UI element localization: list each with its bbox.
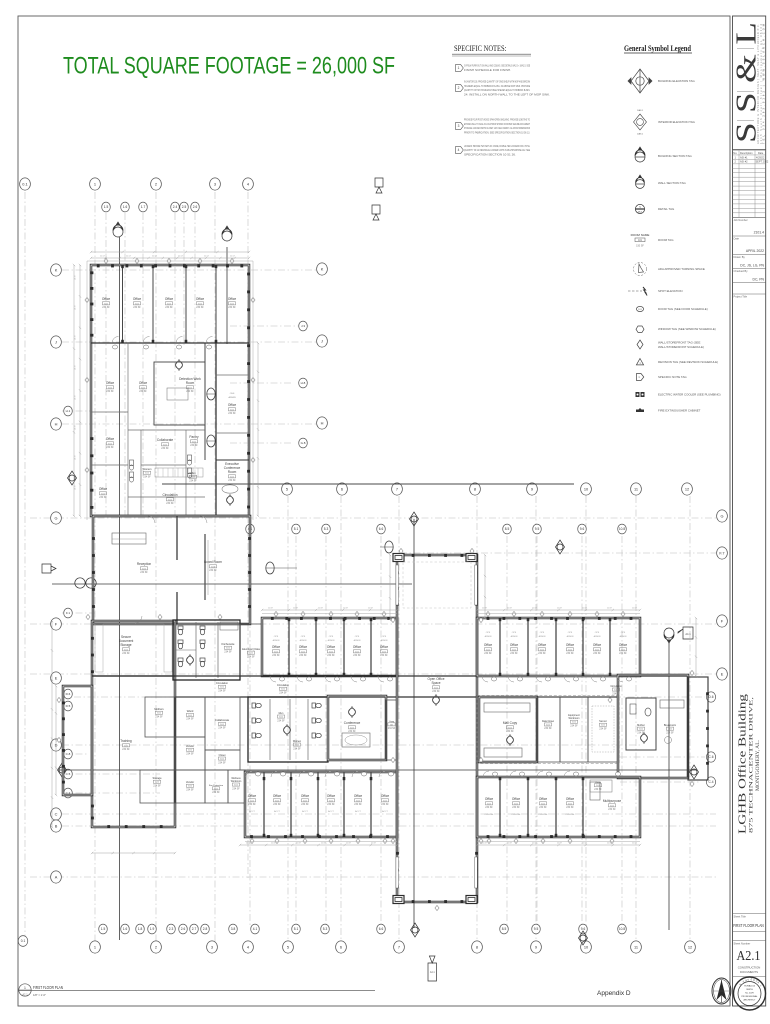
svg-text:3: 3 [214,181,216,186]
svg-text:12'-0": 12'-0" [100,256,105,258]
svg-text:Office: Office [380,645,388,649]
svg-text:FIRE EXTINGUISHER CABINET: FIRE EXTINGUISHER CABINET [658,409,701,413]
svg-text:DETAIL TAG: DETAIL TAG [658,207,675,211]
svg-text:A4.1: A4.1 [685,632,691,636]
svg-text:Office: Office [512,797,520,801]
svg-text:14'-6": 14'-6" [75,365,77,370]
svg-text:LGHB Office Building: LGHB Office Building [738,693,749,834]
svg-text:SEPT 2022: SEPT 2022 [756,161,769,164]
svg-text:ADA APPROVED TURNING SPACE: ADA APPROVED TURNING SPACE [658,267,705,271]
svg-text:234 SF: 234 SF [209,570,217,572]
svg-text:234 SF: 234 SF [510,653,518,655]
svg-text:10'-8": 10'-8" [246,843,251,845]
svg-text:Office: Office [327,794,335,798]
svg-text:Office: Office [484,643,492,647]
svg-text:Mothers: Mothers [154,707,164,711]
svg-text:G: G [54,515,57,520]
svg-text:234 SF: 234 SF [301,804,309,806]
svg-text:10'-8": 10'-8" [532,608,537,610]
svg-text:Space: Space [431,681,440,685]
svg-text:Date: Date [758,152,764,155]
svg-text:ADMIN: ADMIN [273,639,280,642]
svg-text:9.5: 9.5 [534,927,539,931]
svg-text:875 TECHNACENTER DRIVE,: 875 TECHNACENTER DRIVE, [749,696,755,833]
svg-text:234 SF: 234 SF [218,691,226,693]
svg-text:E: E [721,671,724,676]
svg-text:12: 12 [685,486,689,491]
svg-text:234 SF: 234 SF [327,655,335,657]
svg-text:WINDOW TAG (SEE WINDOW SCHEDUL: WINDOW TAG (SEE WINDOW SCHEDULE) [658,327,716,331]
svg-text:Training: Training [120,739,132,743]
svg-text:A2.1: A2.1 [737,949,761,964]
svg-text:8: 8 [476,944,478,949]
svg-text:234 SF: 234 SF [143,477,151,479]
svg-text:BUILDING SECTION TAG: BUILDING SECTION TAG [658,154,693,158]
svg-text:C.5: C.5 [66,772,71,776]
svg-text:10'-8": 10'-8" [482,608,487,610]
svg-text:Collaborate: Collaborate [157,438,174,442]
svg-text:ASI #1: ASI #1 [740,156,748,159]
svg-text:RONALD A: RONALD A [744,985,755,988]
svg-text:H.8: H.8 [301,381,306,385]
svg-text:F.1: F.1 [66,611,70,615]
svg-text:ADMIN: ADMIN [485,635,492,638]
svg-text:MONTGOMERY, AL.: MONTGOMERY, AL. [755,739,761,791]
svg-text:OPS: OPS [568,632,573,634]
svg-text:5.3: 5.3 [324,527,329,531]
svg-text:10'-8": 10'-8" [557,608,562,610]
svg-text:H: H [321,420,324,425]
svg-text:ACCT: ACCT [355,810,361,813]
svg-text:234 SF: 234 SF [484,653,492,655]
svg-text:Kitchenette: Kitchenette [222,642,236,646]
svg-text:234 SF: 234 SF [277,720,285,722]
svg-text:234 SF: 234 SF [186,754,194,756]
svg-text:Room: Room [228,470,237,474]
svg-text:J: J [55,339,57,344]
svg-text:2.4: 2.4 [173,205,178,209]
svg-text:SPOT ELEVATION: SPOT ELEVATION [658,289,682,293]
svg-text:234 SF: 234 SF [186,790,194,792]
svg-text:4.1: 4.1 [253,927,258,931]
svg-text:5: 5 [286,486,288,491]
svg-text:OPS: OPS [355,636,360,638]
svg-text:H: H [55,421,58,426]
svg-text:Board Room: Board Room [204,560,222,564]
svg-text:Office: Office [619,643,627,647]
svg-text:234 SF: 234 SF [272,655,280,657]
svg-text:Office: Office [510,643,518,647]
svg-text:Office: Office [139,381,147,385]
svg-text:234 SF: 234 SF [506,731,514,733]
svg-text:234 SF: 234 SF [186,719,194,721]
svg-text:234 SF: 234 SF [165,307,173,309]
svg-text:FINISH SCHEDULE FOR FINISH.: FINISH SCHEDULE FOR FINISH. [464,68,511,72]
svg-text:234 SF: 234 SF [512,807,520,809]
svg-text:10'-8": 10'-8" [293,608,298,610]
svg-text:2.5: 2.5 [182,205,187,209]
svg-text:234 SF: 234 SF [593,653,601,655]
svg-text:Office: Office [539,797,547,801]
svg-text:WALL/STOREFRONT TAG (SEE: WALL/STOREFRONT TAG (SEE [658,341,700,345]
svg-text:12'-0": 12'-0" [230,256,235,258]
svg-text:Project Title: Project Title [734,295,748,299]
svg-text:10'-8": 10'-8" [371,843,376,845]
svg-text:Office: Office [381,794,389,798]
svg-text:Ward: Ward [187,709,194,713]
svg-text:10'-8": 10'-8" [532,843,537,845]
svg-text:ROOM TAG: ROOM TAG [658,238,674,242]
svg-text:OSS: OSS [230,393,235,395]
svg-text:234 SF: 234 SF [139,391,147,393]
svg-text:Fire Protection: Fire Protection [209,784,224,787]
svg-text:H.1: H.1 [66,409,71,413]
svg-text:Mail Copy: Mail Copy [503,721,518,725]
svg-text:10'-8": 10'-8" [507,843,512,845]
svg-text:10'-8": 10'-8" [582,608,587,610]
svg-text:14'-6": 14'-6" [75,395,77,400]
svg-text:ADMIN: ADMIN [620,635,627,638]
svg-text:6: 6 [340,944,342,949]
svg-text:1: 1 [24,986,26,990]
svg-text:234 SF: 234 SF [212,792,220,794]
svg-text:14'-6": 14'-6" [75,425,77,430]
svg-text:234 SF: 234 SF [190,445,198,447]
svg-text:234 SF: 234 SF [566,807,574,809]
svg-text:Office: Office [99,487,107,491]
svg-text:Drawn By: Drawn By [734,255,746,259]
svg-text:ADMIN: ADMIN [328,639,335,642]
svg-text:Room: Room [186,381,195,385]
svg-text:9: 9 [531,486,533,491]
svg-text:234 SF: 234 SF [538,653,546,655]
svg-text:234 SF: 234 SF [122,749,130,751]
svg-text:OPS: OPS [486,632,491,634]
svg-text:CLINICAL: CLINICAL [538,813,548,816]
svg-text:ADMIN: ADMIN [354,639,361,642]
svg-text:10'-8": 10'-8" [368,608,373,610]
svg-text:5.1: 5.1 [294,927,299,931]
svg-text:234 SF: 234 SF [140,572,148,574]
svg-text:234 SF: 234 SF [248,804,256,806]
svg-text:5.3: 5.3 [323,927,328,931]
svg-text:C.8: C.8 [66,752,71,756]
svg-text:General Symbol Legend: General Symbol Legend [624,44,691,53]
svg-text:234 SF: 234 SF [106,391,114,393]
svg-text:Office: Office [228,403,236,407]
svg-text:J: J [321,338,323,343]
svg-text:5: 5 [287,944,289,949]
svg-text:10'-8": 10'-8" [607,608,612,610]
svg-text:10'-8": 10'-8" [632,608,637,610]
svg-text:2.6: 2.6 [193,205,198,209]
svg-text:Men: Men [279,712,284,715]
svg-text:Office: Office [228,297,236,301]
svg-text:DC, PN: DC, PN [753,278,765,282]
svg-text:11: 11 [634,944,638,949]
svg-text:9.6: 9.6 [580,527,585,531]
svg-text:Wellness: Wellness [231,778,241,780]
svg-text:3: 3 [458,124,460,128]
svg-text:Collaborate: Collaborate [215,718,230,722]
svg-text:SPECIFIC NOTE TAG: SPECIFIC NOTE TAG [658,375,687,379]
svg-text:Office: Office [165,297,173,301]
svg-text:A: A [55,874,58,879]
svg-text:2: 2 [458,86,460,90]
svg-text:TEL 334.263.5162 | WWW.SSLARCH: TEL 334.263.5162 | WWW.SSLARCH.COM [761,24,765,144]
svg-text:234 SF: 234 SF [299,655,307,657]
svg-text:ACCT: ACCT [382,810,388,813]
svg-text:Office: Office [133,297,141,301]
svg-text:1/A8.1: 1/A8.1 [637,109,644,112]
svg-text:PROFESSIONAL: PROFESSIONAL [741,995,758,998]
svg-text:Office: Office [106,437,114,441]
svg-text:2.7: 2.7 [192,927,197,931]
svg-text:234 SF: 234 SF [388,728,396,730]
svg-text:OPS: OPS [512,632,517,634]
svg-text:TOTAL SQUARE FOOTAGE = 26,000: TOTAL SQUARE FOOTAGE = 26,000 SF [63,53,395,80]
svg-text:1.5: 1.5 [101,927,106,931]
svg-text:Sheet Title: Sheet Title [734,915,747,919]
svg-text:14'-6": 14'-6" [75,335,77,340]
svg-text:Office: Office [273,794,281,798]
svg-text:1: 1 [94,944,96,949]
svg-text:APRIL 2022: APRIL 2022 [746,249,764,253]
svg-text:G.8: G.8 [301,441,306,445]
svg-text:FIRST FLOOR PLAN: FIRST FLOOR PLAN [33,985,63,990]
svg-text:12'-0": 12'-0" [204,256,209,258]
svg-text:OPS: OPS [329,636,334,638]
svg-text:10'-8": 10'-8" [268,608,273,610]
svg-text:4: 4 [458,148,460,152]
svg-text:ADMIN: ADMIN [300,639,307,642]
svg-text:234 SF: 234 SF [619,653,627,655]
svg-text:10'-8": 10'-8" [582,843,587,845]
svg-text:Office: Office [299,645,307,649]
svg-text:234 SF: 234 SF [196,307,204,309]
svg-text:1: 1 [458,66,460,70]
svg-text:CLINICAL: CLINICAL [565,813,575,816]
svg-text:ROOM NAME: ROOM NAME [631,233,650,237]
svg-text:A2.1: A2.1 [22,992,28,996]
svg-text:FIRST FLOOR PLAN: FIRST FLOOR PLAN [733,923,764,928]
svg-text:24. INSTALL ON NORTH WALL TO T: 24. INSTALL ON NORTH WALL TO THE LEFT OF… [464,93,550,97]
svg-text:10'-8": 10'-8" [482,843,487,845]
svg-text:1.9: 1.9 [150,927,155,931]
svg-text:ACCT: ACCT [302,810,308,813]
svg-text:7: 7 [398,944,400,949]
svg-text:3.8: 3.8 [231,927,236,931]
svg-text:Vendor: Vendor [186,744,194,748]
svg-text:10.8: 10.8 [619,527,625,531]
svg-text:OPS: OPS [595,632,600,634]
svg-text:J.3: J.3 [301,324,305,328]
svg-text:Workroom: Workroom [231,780,242,783]
svg-text:234 SF: 234 SF [133,307,141,309]
svg-text:6.6: 6.6 [379,527,384,531]
svg-text:Job Number: Job Number [734,218,748,222]
svg-text:ADMIN: ADMIN [567,635,574,638]
svg-text:12'-0": 12'-0" [178,256,183,258]
svg-text:SMITH: SMITH [746,989,753,991]
svg-text:Office: Office [301,794,309,798]
svg-text:1/A8.1: 1/A8.1 [637,133,644,136]
svg-text:234 SF: 234 SF [228,307,236,309]
svg-text:Mother: Mother [637,724,645,727]
svg-text:234 SF: 234 SF [544,728,552,730]
svg-text:E: E [55,675,58,680]
svg-text:Office: Office [327,645,335,649]
svg-text:K: K [55,267,58,272]
svg-text:234 SF: 234 SF [432,691,440,693]
svg-text:14'-6": 14'-6" [75,485,77,490]
svg-text:234 SF: 234 SF [612,693,620,695]
svg-text:234 SF: 234 SF [228,413,236,415]
svg-text:1/8" = 1'-0": 1/8" = 1'-0" [33,993,46,997]
svg-text:OPS: OPS [274,636,279,638]
svg-text:14'-6": 14'-6" [75,275,77,280]
svg-text:Women: Women [293,740,302,743]
svg-text:Office: Office [354,794,362,798]
svg-text:2: 2 [155,181,157,186]
svg-text:Multipurpose: Multipurpose [603,799,621,803]
svg-text:D.5: D.5 [66,704,71,708]
svg-text:2.6: 2.6 [181,927,186,931]
svg-text:Sheet Number: Sheet Number [734,942,751,946]
svg-text:1.7: 1.7 [141,205,146,209]
svg-text:Office: Office [566,797,574,801]
svg-text:Office: Office [566,643,574,647]
svg-text:234 SF: 234 SF [228,480,236,482]
svg-text:ASI #2: ASI #2 [740,161,748,164]
svg-text:Office: Office [196,297,204,301]
svg-text:234 SF: 234 SF [273,804,281,806]
svg-text:ADMIN: ADMIN [539,635,546,638]
svg-text:Appendix D: Appendix D [597,990,631,997]
svg-text:8: 8 [474,486,476,491]
svg-text:234 SF: 234 SF [218,728,226,730]
svg-text:234 SF: 234 SF [155,717,163,719]
svg-text:OPS: OPS [540,632,545,634]
svg-text:234 SF: 234 SF [102,307,110,309]
svg-text:10'-8": 10'-8" [346,843,351,845]
svg-text:REVISION TAG (SEE REVISION SCH: REVISION TAG (SEE REVISION SCHEDULE) [658,360,718,364]
svg-text:8.5: 8.5 [502,927,507,931]
svg-text:234 SF: 234 SF [122,653,130,655]
svg-text:WALL/STOREFRONT SCHEDULE): WALL/STOREFRONT SCHEDULE) [658,345,704,349]
svg-text:Circulation: Circulation [277,683,290,687]
svg-text:10'-8": 10'-8" [321,843,326,845]
svg-text:OPS: OPS [301,636,306,638]
svg-text:Office: Office [102,297,110,301]
svg-text:Conference: Conference [344,721,361,725]
svg-text:BUILDING ELEVATION TAG: BUILDING ELEVATION TAG [658,79,695,83]
svg-text:234 SF: 234 SF [608,809,616,811]
svg-text:234 SF: 234 SF [232,788,240,790]
svg-text:7: 7 [396,486,398,491]
svg-text:1.5: 1.5 [104,205,109,209]
svg-text:9: 9 [535,944,537,949]
svg-text:10'-8": 10'-8" [632,843,637,845]
svg-text:Women: Women [143,467,152,471]
svg-text:6.6: 6.6 [379,927,384,931]
svg-text:3: 3 [211,944,213,949]
svg-text:OPS: OPS [621,632,626,634]
svg-text:234 SF: 234 SF [485,807,493,809]
svg-text:8.5: 8.5 [505,527,510,531]
svg-text:ACCT: ACCT [274,810,280,813]
svg-text:234 SF: 234 SF [353,655,361,657]
svg-text:10'-8": 10'-8" [318,608,323,610]
svg-text:10'-8": 10'-8" [557,843,562,845]
svg-text:234 SF: 234 SF [293,748,301,750]
svg-text:A5.1: A5.1 [638,211,644,214]
svg-text:5.1: 5.1 [294,527,299,531]
svg-text:D.6: D.6 [709,695,714,699]
svg-text:Closet: Closet [219,754,226,757]
svg-text:D.6: D.6 [66,692,71,696]
svg-text:234 SF: 234 SF [570,726,578,728]
svg-text:234 SF: 234 SF [354,804,362,806]
svg-text:No.: No. [733,152,737,155]
svg-text:B: B [55,823,58,828]
svg-text:234 SF: 234 SF [381,804,389,806]
svg-text:6: 6 [341,486,343,491]
svg-text:Server: Server [599,719,607,723]
svg-text:9.5: 9.5 [535,527,540,531]
svg-text:Date: Date [734,237,740,241]
svg-text:Office: Office [485,797,493,801]
svg-text:1.6: 1.6 [123,927,128,931]
svg-text:234 SF: 234 SF [666,732,674,734]
svg-text:C: C [55,811,58,816]
svg-text:150 SF: 150 SF [636,245,644,248]
svg-text:4/29/22: 4/29/22 [756,156,765,159]
svg-text:Breakroom: Breakroom [664,724,676,727]
svg-text:Storage: Storage [152,776,162,780]
svg-text:12: 12 [688,944,692,949]
svg-text:234 SF: 234 SF [166,503,174,505]
svg-text:ACCT: ACCT [328,810,334,813]
svg-text:Circulation: Circulation [216,681,229,685]
svg-text:234 SF: 234 SF [279,693,287,695]
svg-text:Office: Office [248,794,256,798]
svg-text:12'-0": 12'-0" [152,256,157,258]
svg-text:DOCUMENTS: DOCUMENTS [740,970,758,974]
svg-text:2: 2 [155,944,157,949]
svg-text:10'-8": 10'-8" [343,608,348,610]
svg-text:INTERIOR ELEVATION TAG: INTERIOR ELEVATION TAG [658,120,696,124]
svg-text:10'-8": 10'-8" [607,843,612,845]
svg-text:234 SF: 234 SF [327,804,335,806]
svg-text:G: G [720,513,723,518]
svg-text:1.6: 1.6 [123,205,128,209]
svg-text:ADMIN: ADMIN [228,396,235,399]
svg-text:234 SF: 234 SF [247,656,255,658]
svg-text:1: 1 [94,181,96,186]
svg-text:Circulation: Circulation [610,685,622,688]
svg-text:10'-8": 10'-8" [507,608,512,610]
svg-text:234 SF: 234 SF [539,807,547,809]
svg-text:Reception: Reception [137,562,152,566]
svg-text:SPECIFIC NOTES:: SPECIFIC NOTES: [454,44,507,53]
svg-text:Office: Office [353,645,361,649]
svg-text:CLINICAL: CLINICAL [484,813,494,816]
svg-text:10.8: 10.8 [619,927,625,931]
svg-text:K: K [321,266,324,271]
svg-text:ELECTRIC WATER COOLER (SEE PLU: ELECTRIC WATER COOLER (SEE PLUMBING) [658,393,721,397]
svg-text:Workroom: Workroom [569,717,580,720]
